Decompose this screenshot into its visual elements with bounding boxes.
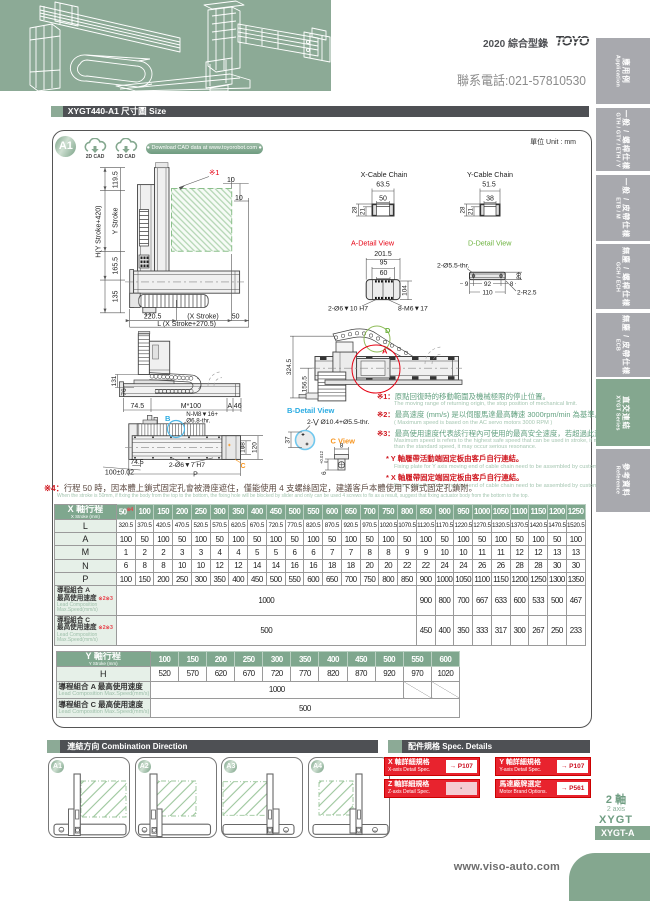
svg-text:D-Detail View: D-Detail View <box>468 239 512 248</box>
svg-text:P: P <box>193 472 198 479</box>
svg-text:74.5: 74.5 <box>130 403 144 410</box>
svg-text:8-M6▼17: 8-M6▼17 <box>398 306 428 313</box>
svg-text:A: A <box>382 347 388 356</box>
svg-text:120: 120 <box>252 442 259 453</box>
svg-text:104: 104 <box>402 285 409 296</box>
svg-text:38: 38 <box>486 196 494 203</box>
svg-text:TOYO: TOYO <box>555 34 590 49</box>
svg-text:2D CAD: 2D CAD <box>86 154 105 159</box>
svg-text:92: 92 <box>484 281 492 288</box>
svg-text:6: 6 <box>321 471 328 475</box>
svg-text:L (X Stroke+270.5): L (X Stroke+270.5) <box>157 321 216 328</box>
svg-text:2-R2.5: 2-R2.5 <box>517 289 537 296</box>
svg-text:50: 50 <box>379 196 387 203</box>
svg-text:201.5: 201.5 <box>374 251 392 258</box>
svg-text:A: A <box>227 403 232 410</box>
svg-text:M*100: M*100 <box>181 403 201 410</box>
svg-text:119.5: 119.5 <box>113 171 120 188</box>
svg-text:(X Stroke): (X Stroke) <box>187 314 219 321</box>
svg-text:95: 95 <box>380 260 388 267</box>
svg-text:2-Ø6▼7 H7: 2-Ø6▼7 H7 <box>169 462 205 469</box>
svg-text:B: B <box>165 414 171 423</box>
svg-text:10: 10 <box>235 195 243 202</box>
svg-text:28: 28 <box>352 206 359 213</box>
svg-text:2-⋁ Ø10.4+Ø5.5-thr.: 2-⋁ Ø10.4+Ø5.5-thr. <box>307 418 370 426</box>
svg-text:100±0.02: 100±0.02 <box>105 470 134 477</box>
svg-text:B-Detail View: B-Detail View <box>287 406 335 415</box>
svg-text:156.5: 156.5 <box>302 376 309 393</box>
svg-text:Y-Cable Chain: Y-Cable Chain <box>467 170 513 179</box>
svg-text:76: 76 <box>121 388 128 396</box>
svg-text:60: 60 <box>380 270 388 277</box>
svg-text:21: 21 <box>360 208 367 215</box>
svg-text:131: 131 <box>111 375 118 386</box>
svg-text:D: D <box>385 326 391 335</box>
svg-text:135: 135 <box>113 290 120 302</box>
svg-text:2-Ø5.5-thr.: 2-Ø5.5-thr. <box>437 263 470 270</box>
svg-text:63.5: 63.5 <box>376 182 390 189</box>
svg-text:8: 8 <box>340 443 344 450</box>
svg-text:165.5: 165.5 <box>113 257 120 275</box>
svg-text:H(Y Stroke+420): H(Y Stroke+420) <box>96 205 103 257</box>
svg-text:A-Detail View: A-Detail View <box>351 239 395 248</box>
svg-text:74.5: 74.5 <box>130 459 143 466</box>
svg-text:324.5: 324.5 <box>286 358 293 375</box>
svg-text:21: 21 <box>468 208 475 215</box>
svg-text:2-Ø6▼10 H7: 2-Ø6▼10 H7 <box>328 306 368 313</box>
svg-text:46: 46 <box>234 403 242 410</box>
svg-text:50: 50 <box>232 314 240 321</box>
svg-text:110: 110 <box>482 289 493 296</box>
svg-text:Y Stroke: Y Stroke <box>113 208 120 235</box>
svg-text:Ø6.8-thr.: Ø6.8-thr. <box>186 417 210 424</box>
svg-text:X-Cable Chain: X-Cable Chain <box>361 170 408 179</box>
svg-text:108: 108 <box>240 442 247 453</box>
svg-text:220.5: 220.5 <box>144 314 162 321</box>
svg-text:20: 20 <box>516 272 523 279</box>
svg-text:10: 10 <box>227 177 235 184</box>
svg-text:3D CAD: 3D CAD <box>117 154 136 159</box>
svg-text:※1: ※1 <box>209 168 219 177</box>
svg-text:28: 28 <box>460 206 467 213</box>
svg-text:C: C <box>241 463 246 470</box>
svg-text:37: 37 <box>285 436 292 444</box>
svg-text:9: 9 <box>465 281 469 288</box>
svg-text:51.5: 51.5 <box>482 182 496 189</box>
